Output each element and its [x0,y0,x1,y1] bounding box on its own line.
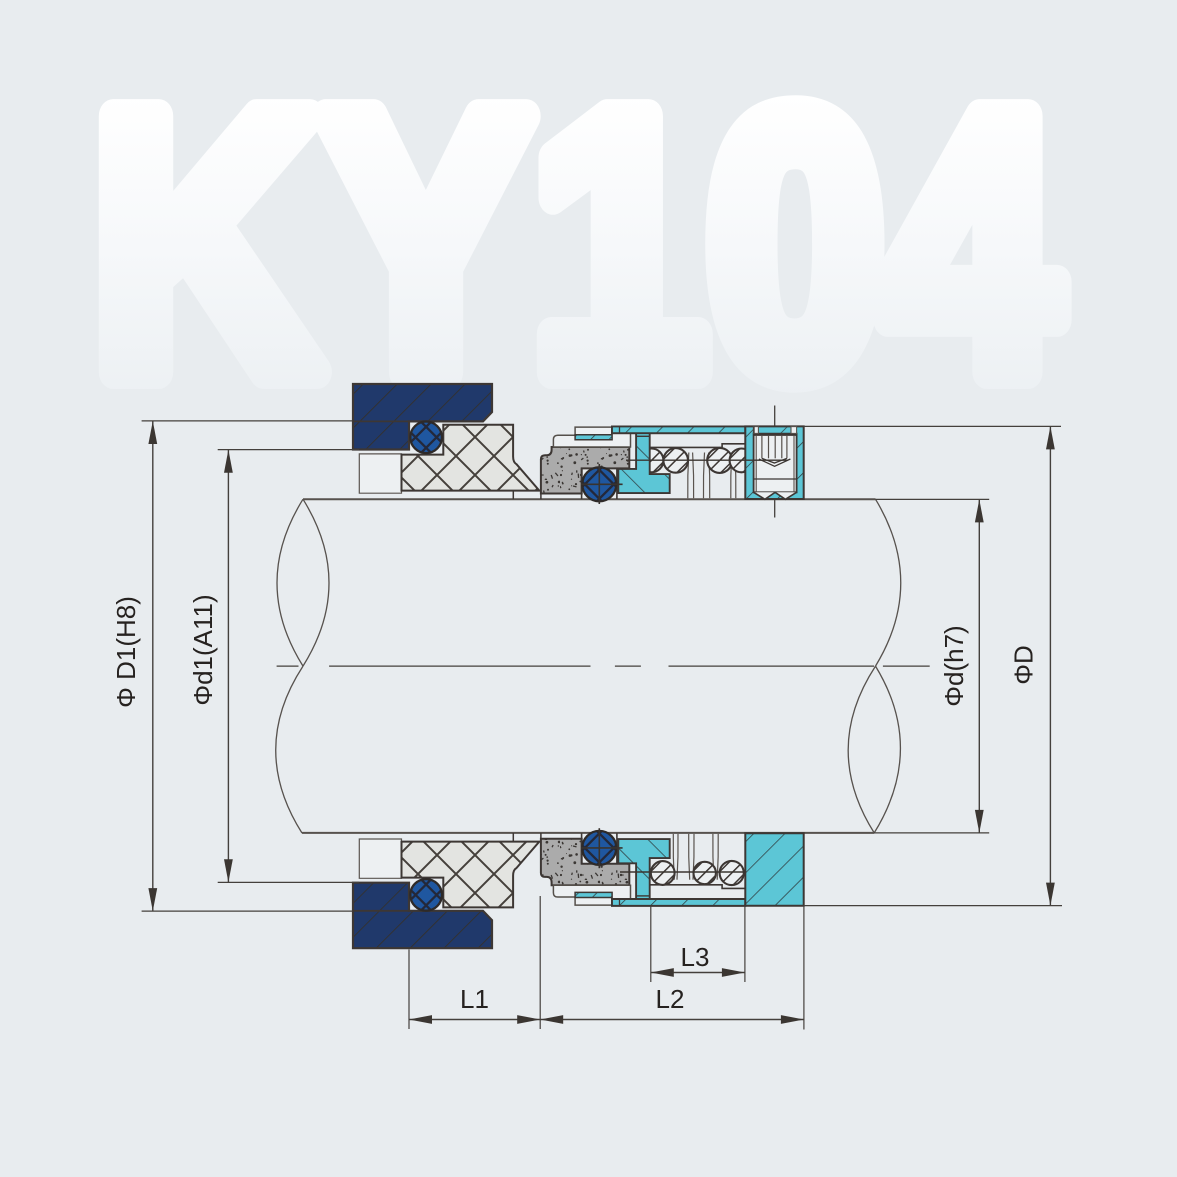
svg-text:L1: L1 [460,984,489,1014]
svg-text:L3: L3 [681,942,710,972]
svg-text:Φd(h7): Φd(h7) [939,625,969,706]
svg-text:L2: L2 [656,984,685,1014]
svg-text:ΦD: ΦD [1009,645,1039,685]
svg-text:KY104: KY104 [92,36,1061,452]
svg-text:Φd1(A11): Φd1(A11) [188,594,218,705]
svg-text:Φ D1(H8): Φ D1(H8) [111,596,141,708]
